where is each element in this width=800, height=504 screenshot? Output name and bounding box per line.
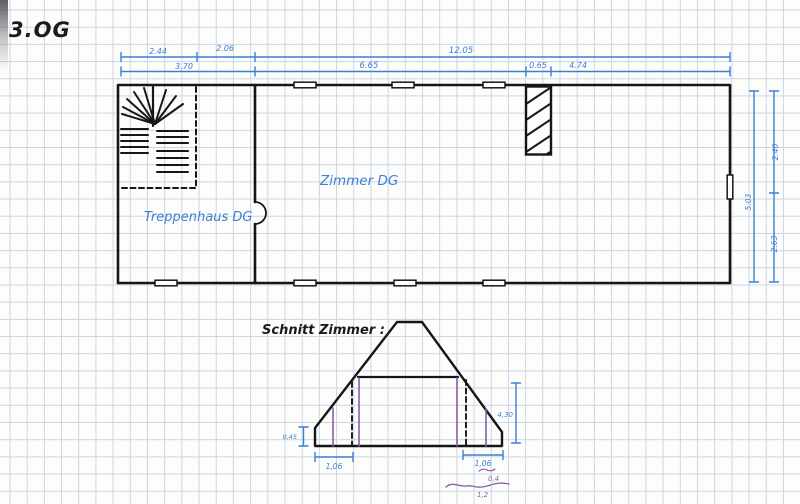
stair-treads-left [121, 129, 148, 153]
chimney [520, 84, 556, 172]
page-title: 3.OG [9, 18, 71, 42]
dim-label: 2.63 [770, 235, 779, 252]
window-symbol [294, 280, 316, 286]
dimension-chain-top-row1: 2.44 2.06 12.05 [121, 44, 730, 62]
dim-label: 2.44 [149, 47, 167, 56]
dim-label: 4,30 [497, 411, 513, 419]
dim-label: 0,45 [283, 433, 297, 441]
floor-plan: Treppenhaus DG Zimmer DG [118, 82, 733, 286]
dim-label: 1,06 [326, 462, 343, 471]
section-title: Schnitt Zimmer : [262, 323, 385, 338]
section-dim-knee: 0,45 [283, 427, 308, 446]
room-label-treppenhaus: Treppenhaus DG [144, 210, 252, 225]
dimension-right-total: 5.03 [744, 91, 759, 282]
roof-section: Schnitt Zimmer : 0,45 1,06 1,06 [262, 322, 521, 499]
staircase [121, 86, 196, 188]
window-symbol-right [727, 175, 733, 199]
graph-paper-sheet: 3.OG [0, 0, 800, 504]
purple-tilde [479, 469, 495, 471]
dim-label: 4.74 [569, 61, 587, 70]
outer-walls [118, 85, 730, 283]
section-outline [315, 322, 502, 446]
section-dim-bottom-left: 1,06 [315, 453, 353, 472]
dim-label: 2.40 [771, 143, 780, 160]
dim-label: 6.65 [360, 61, 379, 71]
dimension-right-split: 2.40 2.63 [770, 91, 781, 282]
stair-treads-right [157, 131, 188, 172]
section-dim-bottom-right: 1,06 [463, 451, 503, 469]
door-arc [255, 202, 266, 224]
dim-label: 0.65 [529, 61, 547, 70]
dim-label: 3.70 [175, 62, 193, 71]
window-symbol [155, 280, 177, 286]
window-symbol [394, 280, 416, 286]
window-symbol [392, 82, 414, 88]
note-label: 0,4 [488, 475, 499, 483]
section-dashed-lines [352, 380, 466, 446]
dim-label: 5.03 [744, 193, 753, 210]
section-purple-lines [333, 378, 486, 446]
section-purple-notes: 0,4 1,2 [446, 469, 509, 499]
window-symbol [294, 82, 316, 88]
purple-squiggle [446, 483, 509, 487]
room-label-zimmer: Zimmer DG [319, 173, 398, 189]
dim-label: 2.06 [216, 44, 234, 53]
dimension-chain-top-row2: 3.70 6.65 0.65 4.74 [121, 61, 730, 76]
window-symbol [483, 82, 505, 88]
dim-label: 1,06 [475, 459, 492, 468]
architectural-drawing: 3.OG [0, 0, 800, 504]
dim-label: 12.05 [449, 46, 473, 56]
window-symbol [483, 280, 505, 286]
note-label: 1,2 [477, 491, 489, 499]
